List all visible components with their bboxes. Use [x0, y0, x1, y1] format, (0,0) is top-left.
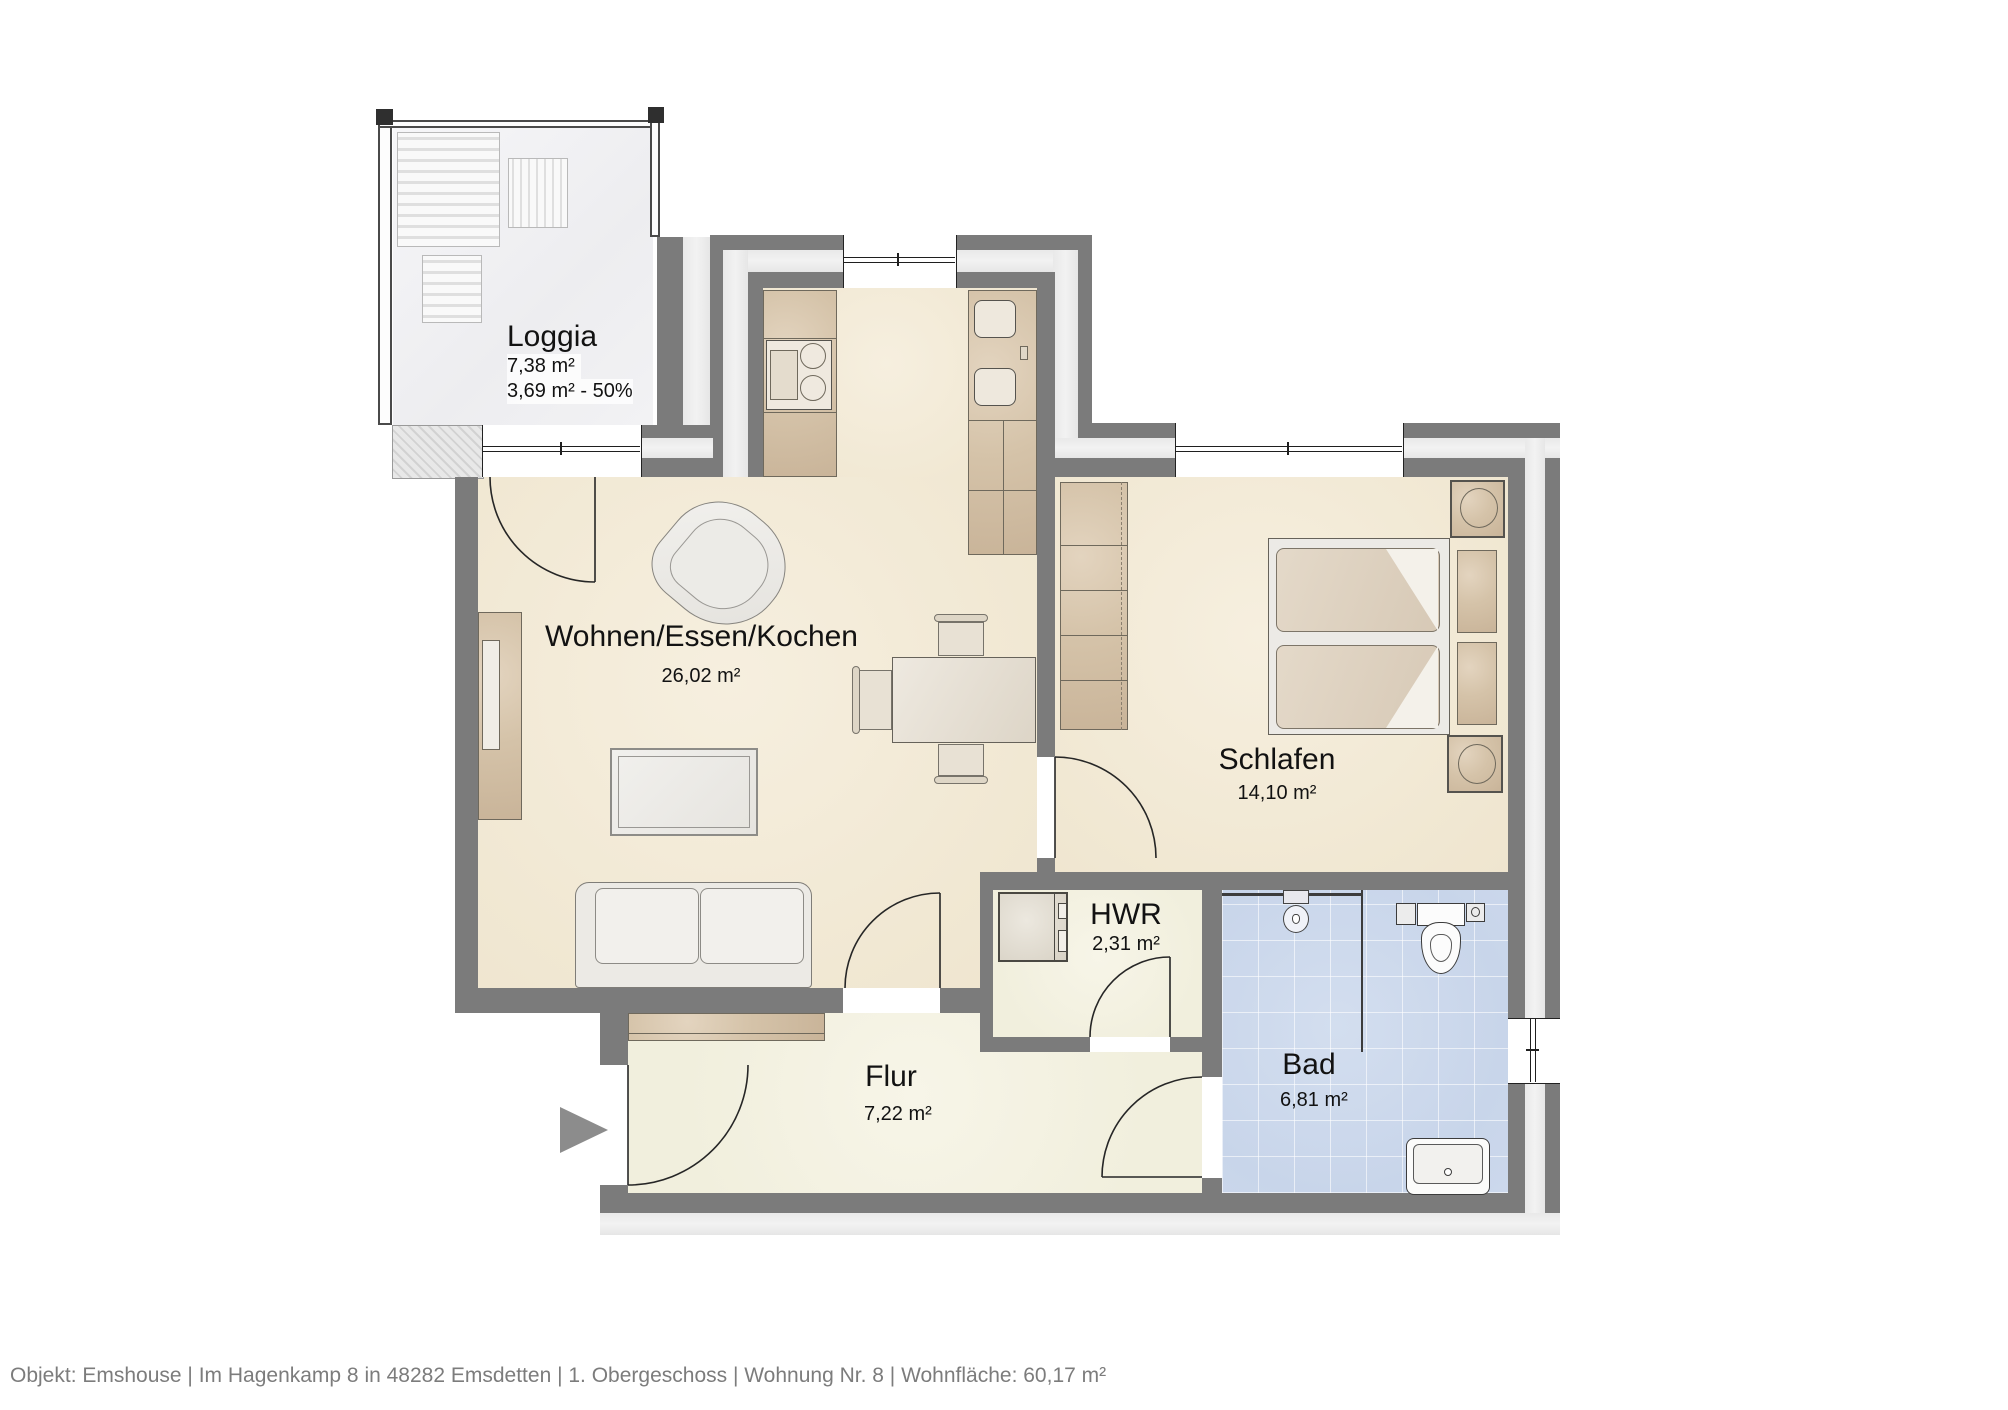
schlafen-area: 14,10 m²: [1216, 781, 1338, 806]
bad-name: Bad: [1280, 1048, 1338, 1082]
entrance-door-arc: [628, 1065, 748, 1185]
living-area: 26,02 m²: [545, 664, 857, 689]
bad-door-arc: [1102, 1077, 1202, 1177]
bad-label: Bad 6,81 m²: [1280, 1048, 1338, 1113]
hwr-area: 2,31 m²: [1086, 932, 1166, 957]
schlafen-name: Schlafen: [1216, 743, 1338, 777]
flur-name: Flur: [864, 1060, 918, 1094]
loggia-label: Loggia 7,38 m² 3,69 m² - 50%: [507, 320, 633, 404]
balcony-door-arc: [490, 477, 595, 582]
hwr-label: HWR 2,31 m²: [1086, 898, 1166, 957]
living-flur-door-arc: [845, 893, 940, 988]
floorplan-canvas: Loggia 7,38 m² 3,69 m² - 50% Wohnen/Esse…: [0, 0, 2008, 1410]
living-name: Wohnen/Essen/Kochen: [545, 620, 857, 654]
living-label: Wohnen/Essen/Kochen 26,02 m²: [545, 620, 857, 689]
schlafen-label: Schlafen 14,10 m²: [1216, 743, 1338, 806]
flur-label: Flur 7,22 m²: [864, 1060, 918, 1127]
bad-area: 6,81 m²: [1280, 1088, 1338, 1113]
footer-object-info: Objekt: Emshouse | Im Hagenkamp 8 in 482…: [10, 1364, 1106, 1388]
bedroom-door-arc: [1055, 757, 1156, 858]
hwr-door-arc: [1090, 957, 1170, 1037]
loggia-area: 7,38 m²: [507, 354, 581, 379]
loggia-name: Loggia: [507, 320, 633, 354]
loggia-area-50: 3,69 m² - 50%: [507, 379, 633, 404]
door-swing-overlay: [0, 0, 2008, 1410]
flur-area: 7,22 m²: [864, 1102, 918, 1127]
hwr-name: HWR: [1086, 898, 1166, 932]
